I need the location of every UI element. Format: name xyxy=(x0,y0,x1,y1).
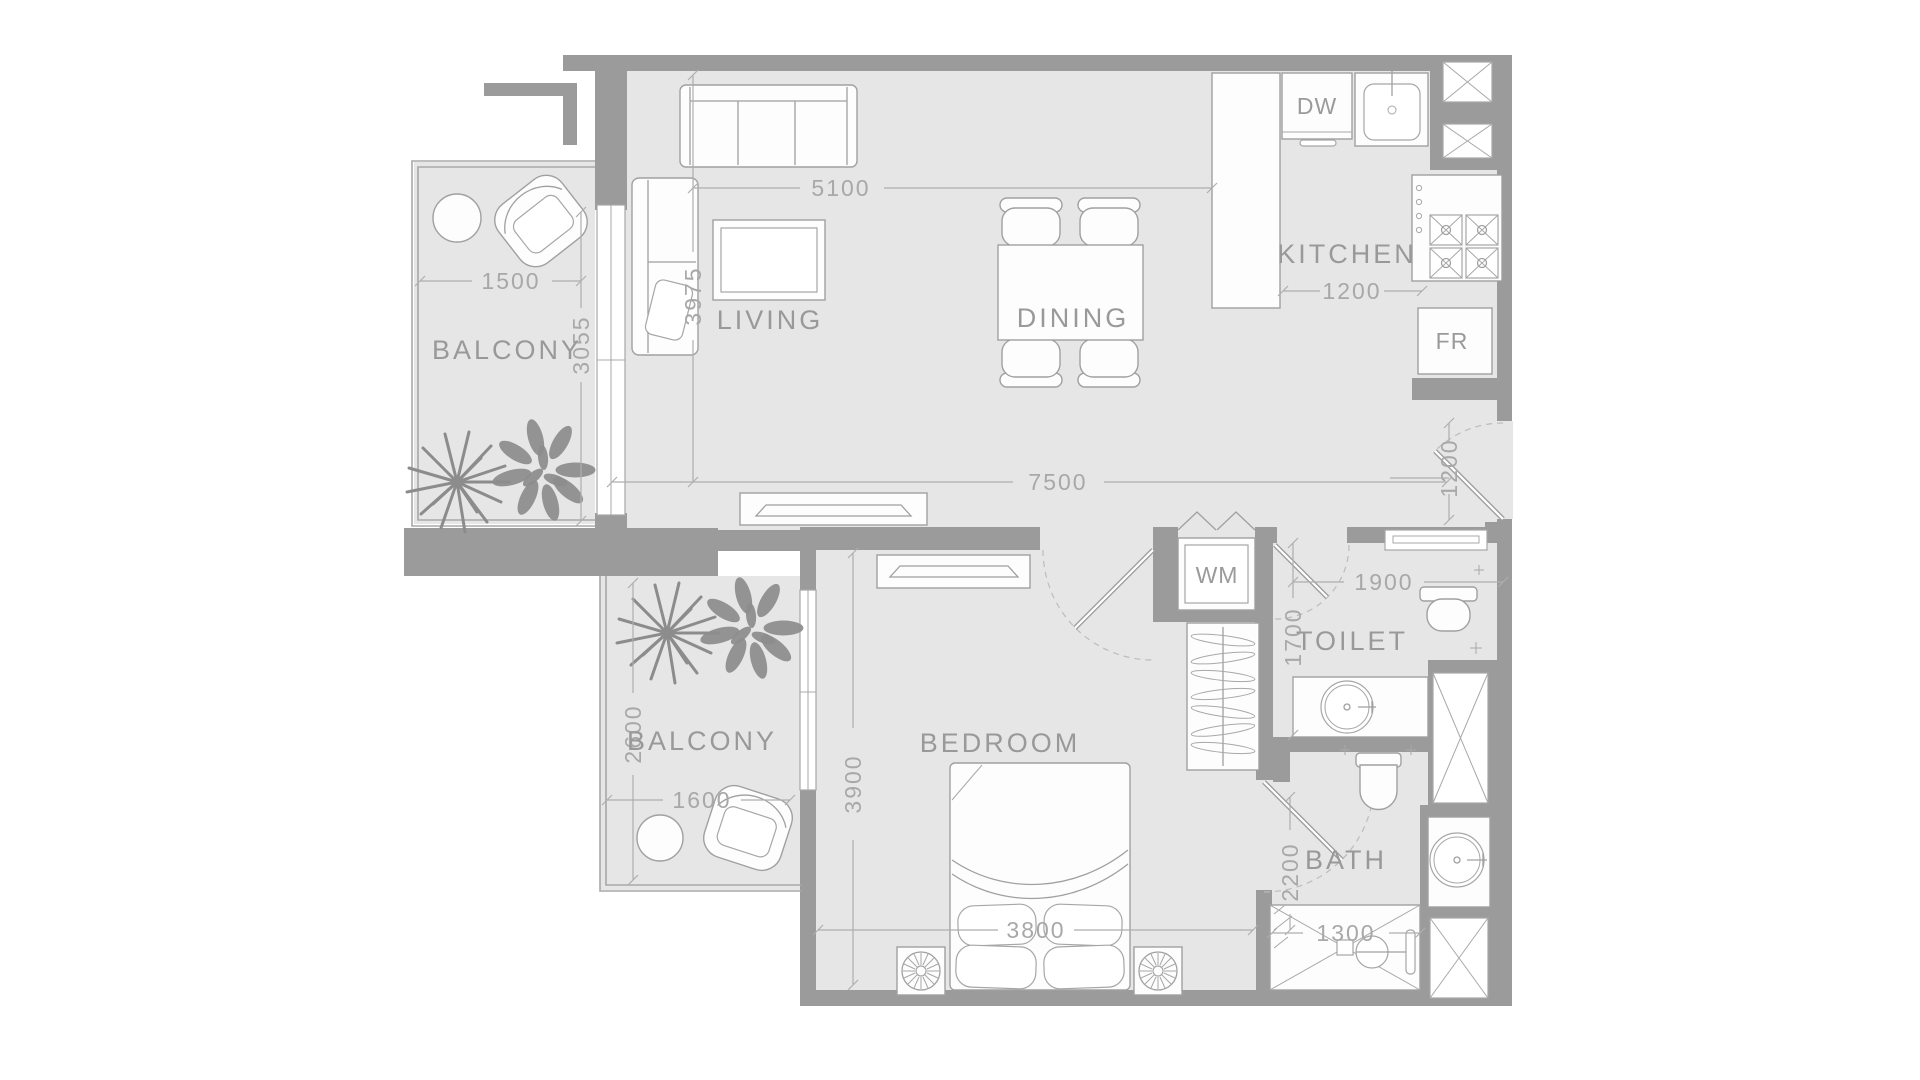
svg-text:1600: 1600 xyxy=(672,787,731,813)
svg-text:1300: 1300 xyxy=(1316,920,1375,946)
svg-text:3975: 3975 xyxy=(680,266,706,325)
svg-text:3900: 3900 xyxy=(840,754,866,813)
entry-opening xyxy=(1496,421,1513,519)
svg-text:1200: 1200 xyxy=(1436,438,1462,497)
sofa xyxy=(680,85,857,167)
svg-text:1900: 1900 xyxy=(1354,569,1413,595)
ceiling-fan-right xyxy=(1134,947,1182,995)
kitchen-counter xyxy=(1212,73,1280,308)
floor-plan: FR DW xyxy=(0,0,1920,1080)
toilet-door-opening xyxy=(1277,527,1347,543)
shaft-mid xyxy=(1433,673,1488,803)
towel-niche xyxy=(1385,530,1487,550)
stove xyxy=(1412,175,1502,281)
svg-text:5100: 5100 xyxy=(811,175,870,201)
shaft-bottom xyxy=(1430,918,1488,998)
toilet-label: TOILET xyxy=(1296,626,1408,656)
tv-shelf-bedroom xyxy=(877,555,1030,588)
bath-door-opening xyxy=(1255,780,1273,890)
balcony-lower-label: BALCONY xyxy=(627,726,777,756)
outdoor-table-upper xyxy=(433,194,481,242)
bed xyxy=(950,763,1130,990)
kitchen-sink xyxy=(1355,71,1428,146)
bedroom-label: BEDROOM xyxy=(920,728,1081,758)
kitchen-label: KITCHEN xyxy=(1277,239,1417,269)
bath-label: BATH xyxy=(1305,845,1387,875)
svg-text:1200: 1200 xyxy=(1322,278,1381,304)
svg-text:3800: 3800 xyxy=(1006,917,1065,943)
shaft-top-1 xyxy=(1443,62,1492,102)
shaft-top-2 xyxy=(1443,124,1492,158)
shower xyxy=(1270,905,1420,990)
living-window xyxy=(597,205,625,515)
svg-text:1500: 1500 xyxy=(481,268,540,294)
toilet-basin xyxy=(1293,677,1428,737)
bath-basin xyxy=(1428,817,1490,907)
outdoor-table-lower xyxy=(637,815,683,861)
fridge: FR xyxy=(1418,308,1492,374)
balcony-upper-label: BALCONY xyxy=(432,335,582,365)
tv-console-living xyxy=(740,493,927,525)
bedroom-window xyxy=(800,590,816,790)
washing-machine-label: WM xyxy=(1196,562,1239,588)
svg-text:2200: 2200 xyxy=(1277,842,1303,901)
wardrobe xyxy=(1187,623,1259,770)
fridge-label: FR xyxy=(1436,328,1469,354)
svg-text:7500: 7500 xyxy=(1028,469,1087,495)
living-label: LIVING xyxy=(717,305,824,335)
coffee-table xyxy=(713,220,825,300)
dishwasher-label: DW xyxy=(1297,93,1337,119)
dining-label: DINING xyxy=(1017,303,1130,333)
ceiling-fan-left xyxy=(897,947,945,995)
